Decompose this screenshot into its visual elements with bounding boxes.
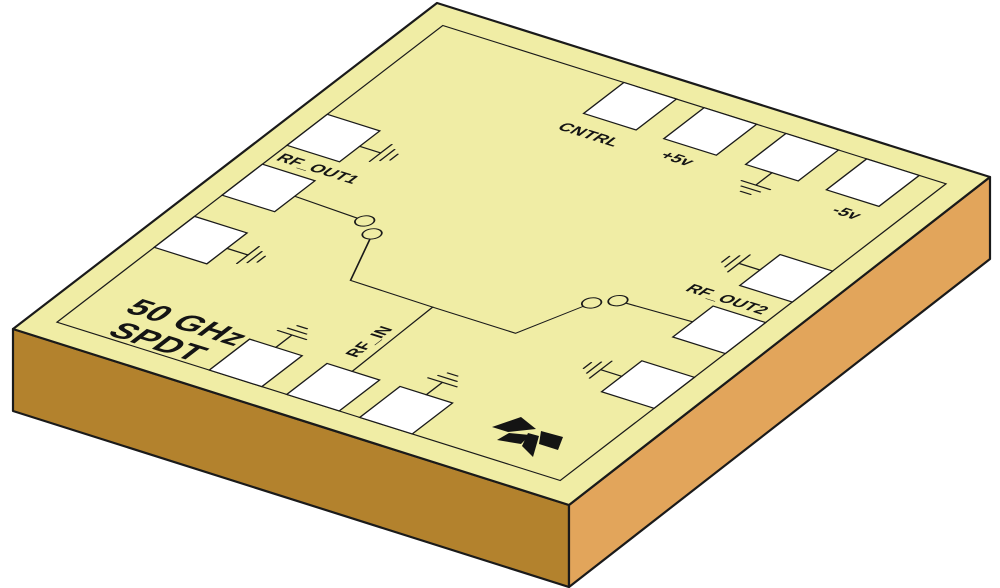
chip-illustration-stage: CNTRL +5v -5v RF_OUT1 RF_OUT2 RF_IN 50 G…	[0, 0, 1000, 588]
spdt-chip-isometric-figure: CNTRL +5v -5v RF_OUT1 RF_OUT2 RF_IN 50 G…	[0, 0, 1000, 588]
